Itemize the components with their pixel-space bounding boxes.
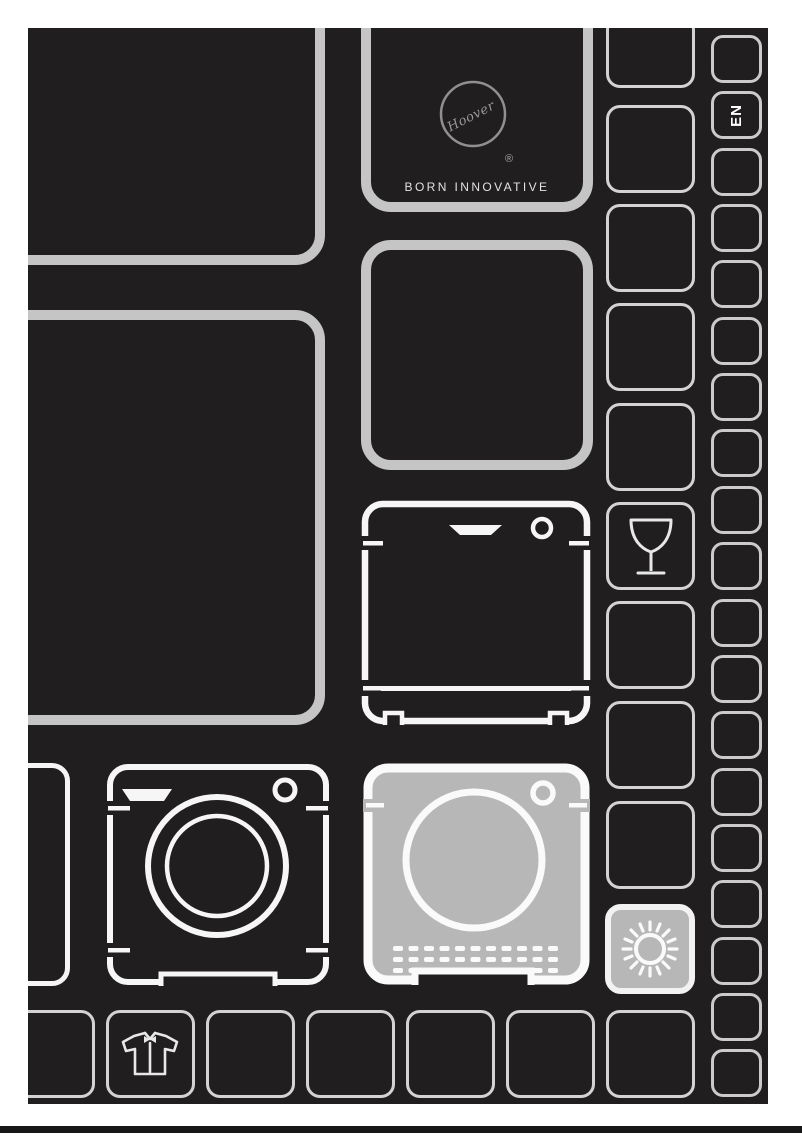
strip-grid-tile [711, 429, 762, 477]
grid-tile [606, 403, 695, 491]
sun-tile [605, 904, 695, 994]
grid-tile [606, 1010, 695, 1098]
shirt-icon [118, 1025, 184, 1083]
hoover-logo-tile: Hoover ® BORN INNOVATIVE [361, 28, 593, 212]
language-badge-tile: EN [711, 91, 762, 139]
strip-grid-tile [711, 542, 762, 590]
strip-grid-tile [711, 937, 762, 985]
grid-tile-large [28, 310, 325, 725]
strip-grid-tile [711, 373, 762, 421]
hoover-logo-icon: Hoover ® [431, 74, 523, 166]
strip-grid-tile [711, 148, 762, 196]
grid-tile-large [28, 28, 325, 265]
strip-grid-tile [711, 824, 762, 872]
registered-mark: ® [505, 153, 513, 165]
grid-tile [606, 303, 695, 391]
manual-cover-page: Hoover ® BORN INNOVATIVE [0, 0, 802, 1136]
sun-icon [619, 918, 681, 980]
strip-grid-tile [711, 486, 762, 534]
strip-grid-tile [711, 768, 762, 816]
strip-grid-tile [711, 711, 762, 759]
grid-tile [606, 801, 695, 889]
hoover-brand-block: Hoover ® BORN INNOVATIVE [371, 74, 583, 194]
grid-tile [606, 105, 695, 193]
strip-grid-tile [711, 317, 762, 365]
strip-grid-tile [711, 1049, 762, 1097]
strip-grid-tile [711, 599, 762, 647]
brand-tagline: BORN INNOVATIVE [405, 180, 550, 194]
grid-tile [28, 1010, 95, 1098]
strip-grid-tile [711, 993, 762, 1041]
strip-grid-tile [711, 260, 762, 308]
page-bottom-edge [0, 1126, 802, 1133]
grid-tile [206, 1010, 295, 1098]
grid-tile [306, 1010, 395, 1098]
grid-tile [506, 1010, 595, 1098]
strip-grid-tile [711, 880, 762, 928]
grid-tile [606, 28, 695, 88]
grid-tile [606, 204, 695, 292]
grid-tile [606, 701, 695, 789]
appliance-tile-partial [28, 763, 70, 986]
tumble-dryer-icon [363, 763, 590, 985]
wine-glass-icon [623, 515, 679, 577]
hoover-logo-text: Hoover [444, 98, 498, 135]
wine-glass-tile [606, 502, 695, 590]
grid-tile-large [361, 240, 593, 470]
language-badge: EN [728, 104, 745, 127]
washing-machine-icon [106, 763, 330, 986]
dishwasher-icon [361, 500, 591, 725]
shirt-tile [106, 1010, 195, 1098]
strip-grid-tile [711, 204, 762, 252]
strip-grid-tile [711, 35, 762, 83]
grid-tile [406, 1010, 495, 1098]
grid-tile [606, 601, 695, 689]
cover-black-area: Hoover ® BORN INNOVATIVE [28, 28, 768, 1104]
strip-grid-tile [711, 655, 762, 703]
